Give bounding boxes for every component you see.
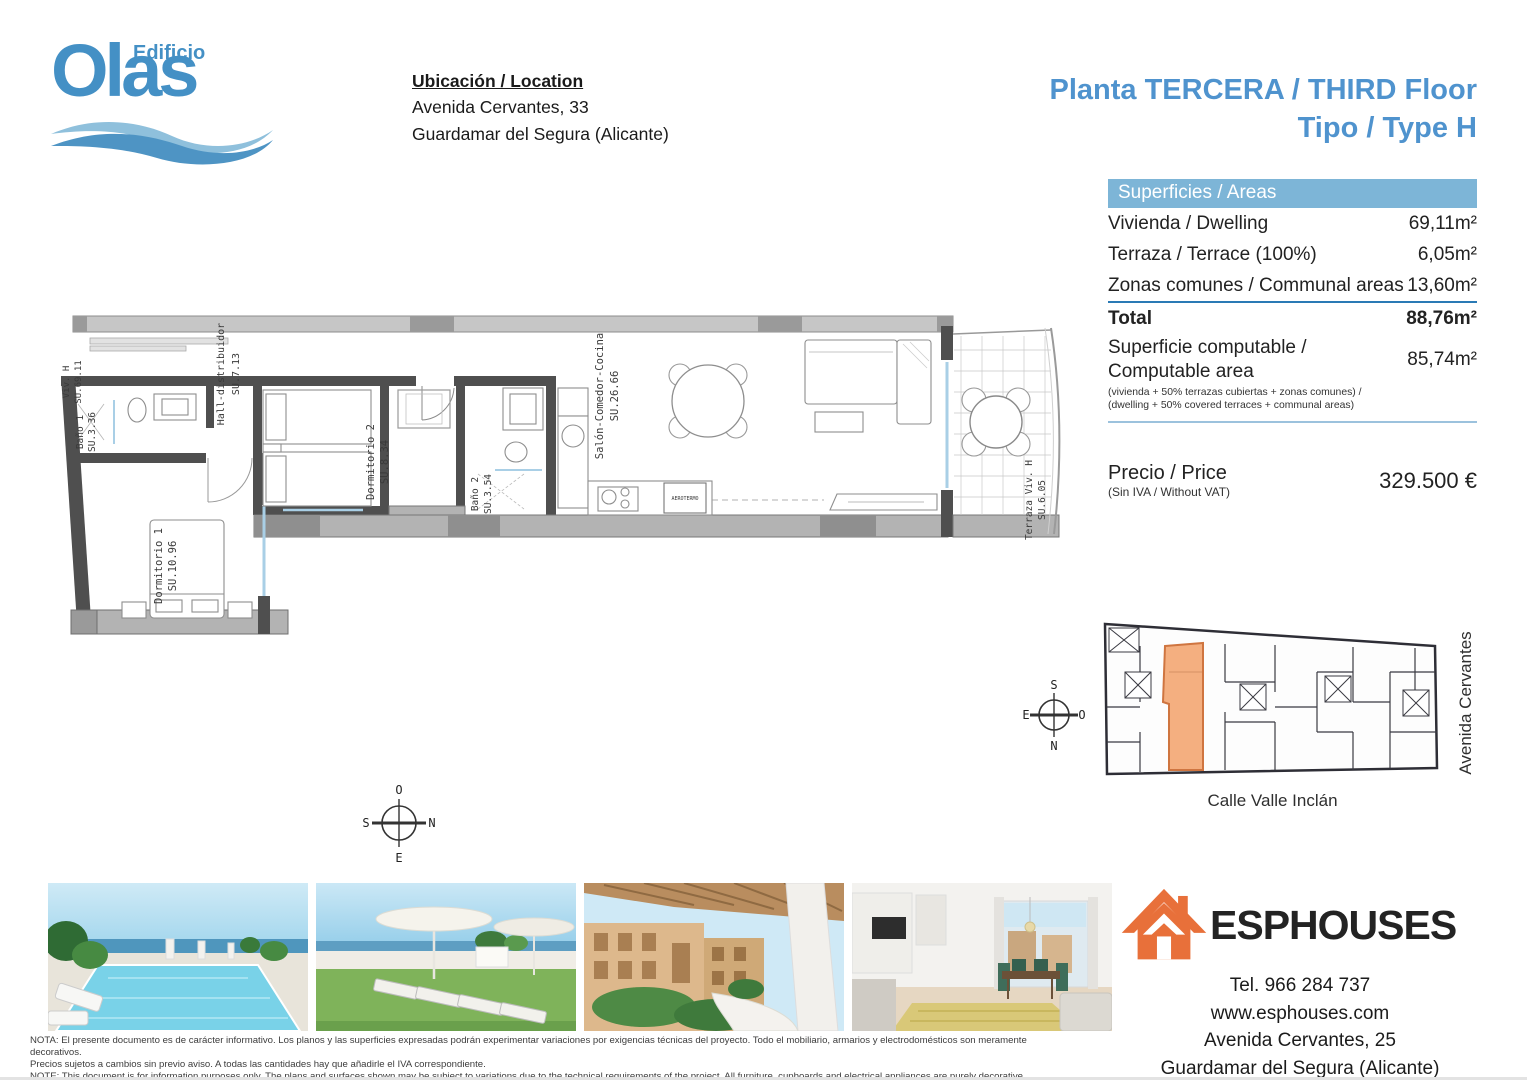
unit-area: SU.69.11 xyxy=(74,360,84,403)
equipment-label: AEROTERMO xyxy=(671,496,698,502)
total-value: 88,76m² xyxy=(1406,308,1477,330)
room-label-hall: Hall-distribuidor xyxy=(216,323,227,425)
olas-logo: Edificio Olas xyxy=(45,26,280,171)
room-label-bano2: Baño 2 xyxy=(470,477,481,511)
computable-notes: (vivienda + 50% terrazas cubiertas + zon… xyxy=(1108,386,1477,423)
logo-wave-icon xyxy=(45,114,280,172)
siteplan-drawing xyxy=(1085,612,1480,802)
room-area-dorm1: SU.10.96 xyxy=(167,541,179,592)
room-label-bano1: Baño 1 xyxy=(75,415,86,450)
area-row-label: Terraza / Terrace (100%) xyxy=(1108,244,1317,266)
siteplan-compass-icon: S E O N xyxy=(1022,676,1086,754)
area-row-value: 6,05m² xyxy=(1418,244,1477,266)
room-area-hall: SU.7.13 xyxy=(231,353,242,395)
computable-note-2: (dwelling + 50% covered terraces + commu… xyxy=(1108,399,1477,413)
agency-name: ESPHOUSES xyxy=(1210,902,1456,949)
room-area-dorm2: SU.8.34 xyxy=(379,440,391,484)
note-line-2: Precios sujetos a cambios sin previo avi… xyxy=(30,1059,1040,1071)
agency-phone: Tel. 966 284 737 xyxy=(1120,972,1480,1000)
table-row: Terraza / Terrace (100%) 6,05m² xyxy=(1108,239,1477,270)
esphouses-logo-icon xyxy=(1120,884,1208,966)
price-label: Precio / Price xyxy=(1108,462,1230,485)
computable-label-2: Computable area xyxy=(1108,360,1307,384)
note-line-1: NOTA: El presente documento es de caráct… xyxy=(30,1035,1040,1059)
area-row-value: 13,60m² xyxy=(1407,275,1477,297)
area-row-value: 69,11m² xyxy=(1409,213,1477,235)
plan-title-line2: Tipo / Type H xyxy=(1050,110,1478,148)
disclaimer-notes: NOTA: El presente documento es de caráct… xyxy=(30,1035,1040,1080)
location-address-2: Guardamar del Segura (Alicante) xyxy=(412,121,669,147)
unit-label: Viv. H xyxy=(62,366,72,399)
computable-value: 85,74m² xyxy=(1407,349,1477,371)
room-area-bano2: SU.3.54 xyxy=(483,474,494,514)
siteplan-building-outline xyxy=(1105,624,1437,774)
compass-bottom: E xyxy=(395,851,402,865)
room-label-dorm2: Dormitorio 2 xyxy=(365,424,377,500)
location-address-1: Avenida Cervantes, 33 xyxy=(412,94,669,120)
street-label-right: Avenida Cervantes xyxy=(1456,613,1480,793)
floorplan-compass-icon: O S N E xyxy=(360,778,438,866)
compass-right: O xyxy=(1078,708,1085,722)
agency-address-1: Avenida Cervantes, 25 xyxy=(1120,1027,1480,1055)
siteplan-highlighted-unit xyxy=(1163,643,1203,770)
room-area-terraza: SU.6.05 xyxy=(1037,480,1048,520)
photo-rooftop-pool xyxy=(48,883,308,1031)
compass-top: O xyxy=(395,783,402,797)
agency-block: ESPHOUSES Tel. 966 284 737 www.esphouses… xyxy=(1120,884,1480,1080)
floorplan-drawing: Viv. H SU.69.11 Baño 1 SU.3.36 Hall-dist… xyxy=(58,304,1070,656)
table-row: Zonas comunes / Communal areas 13,60m² xyxy=(1108,270,1477,301)
compass-top: S xyxy=(1050,678,1057,692)
compass-left: E xyxy=(1022,708,1029,722)
location-heading: Ubicación / Location xyxy=(412,68,669,94)
computable-note-1: (vivienda + 50% terrazas cubiertas + zon… xyxy=(1108,386,1477,400)
compass-bottom: N xyxy=(1050,739,1057,753)
compass-left: S xyxy=(362,816,369,830)
photo-balcony-view xyxy=(584,883,844,1031)
room-area-bano1: SU.3.36 xyxy=(87,412,98,452)
price-value: 329.500 € xyxy=(1379,468,1477,494)
areas-table-header: Superficies / Areas xyxy=(1108,179,1477,208)
plan-title-line1: Planta TERCERA / THIRD Floor xyxy=(1050,72,1478,110)
computable-row: Superficie computable / Computable area … xyxy=(1108,336,1477,384)
street-label-bottom: Calle Valle Inclán xyxy=(1100,791,1445,811)
brochure-page: Edificio Olas Ubicación / Location Aveni… xyxy=(0,0,1527,1080)
logo-brand-text: Olas xyxy=(51,34,195,108)
agency-contact: Tel. 966 284 737 www.esphouses.com Aveni… xyxy=(1120,972,1480,1080)
computable-label-1: Superficie computable / xyxy=(1108,336,1307,360)
room-label-dorm1: Dormitorio 1 xyxy=(153,528,165,604)
photo-rooftop-terrace xyxy=(316,883,576,1031)
room-label-salon: Salón-Comedor-Cocina xyxy=(594,333,606,459)
location-block: Ubicación / Location Avenida Cervantes, … xyxy=(412,68,669,147)
table-row: Vivienda / Dwelling 69,11m² xyxy=(1108,208,1477,239)
photo-interior-living xyxy=(852,883,1112,1031)
areas-table: Superficies / Areas Vivienda / Dwelling … xyxy=(1108,179,1477,423)
price-note: (Sin IVA / Without VAT) xyxy=(1108,485,1230,499)
room-label-terraza: Terraza Viv. H xyxy=(1024,460,1035,540)
photo-strip xyxy=(48,883,1112,1031)
plan-title: Planta TERCERA / THIRD Floor Tipo / Type… xyxy=(1050,72,1478,147)
compass-right: N xyxy=(428,816,435,830)
area-row-label: Vivienda / Dwelling xyxy=(1108,213,1268,235)
table-row-total: Total 88,76m² xyxy=(1108,301,1477,334)
room-area-salon: SU.26.66 xyxy=(609,371,621,422)
price-block: Precio / Price (Sin IVA / Without VAT) 3… xyxy=(1108,462,1477,499)
agency-website: www.esphouses.com xyxy=(1120,1000,1480,1028)
area-row-label: Zonas comunes / Communal areas xyxy=(1108,275,1404,297)
total-label: Total xyxy=(1108,308,1152,330)
